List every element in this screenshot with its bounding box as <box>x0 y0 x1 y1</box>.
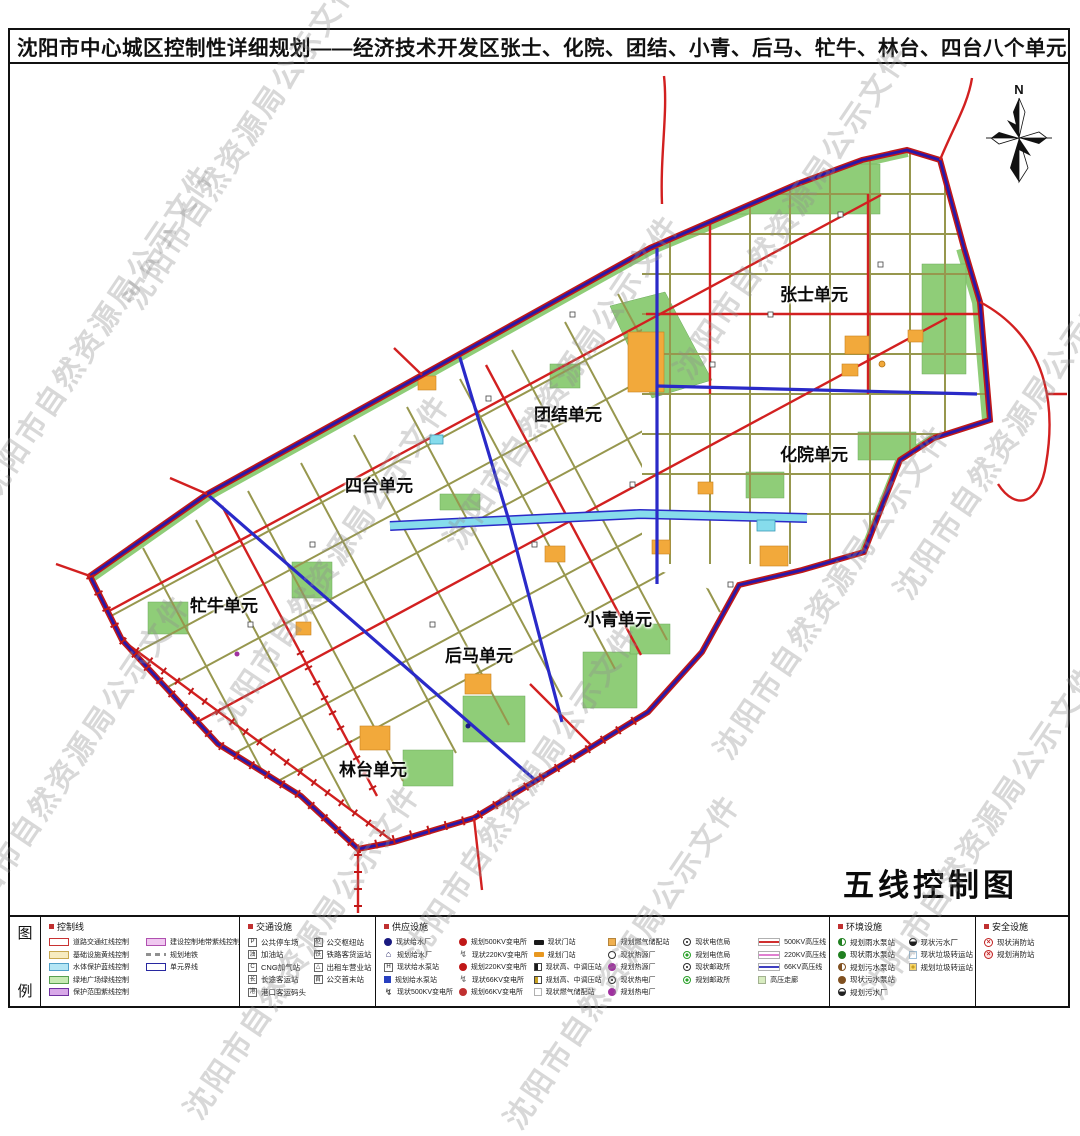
legend-item-label: 公交首末站 <box>327 974 365 985</box>
north-arrow-icon: N <box>986 82 1052 182</box>
legend-item: 规划垃圾转运站 <box>909 962 974 972</box>
legend-item: 长长途客运站 <box>248 975 308 985</box>
legend-item-label: 建设控制地带紫线控制 <box>170 937 239 947</box>
legend-item-label: 单元界线 <box>170 962 198 972</box>
legend-item-label: 公交枢纽站 <box>327 937 365 948</box>
legend-item-label: 规划消防站 <box>997 949 1035 960</box>
legend-swatch-openrect-icon <box>49 938 69 946</box>
legend-label-char-top: 图 <box>17 922 32 943</box>
plan-sheet: 沈阳市中心城区控制性详细规划——经济技术开发区张士、化院、团结、小青、后马、牤牛… <box>0 0 1080 1033</box>
legend-section-safety-facilities: 安全设施×现状消防站×规划消防站 <box>975 917 1068 1006</box>
legend-swatch-openrect-icon <box>49 963 69 971</box>
legend-section-transport-facilities: 交通设施P公共停车场油加油站CCNG加气站长长途客运站港港口客运码头枢公交枢纽站… <box>239 917 375 1006</box>
legend-item: 现状高、中调压站 <box>534 962 603 972</box>
legend-section-title-text: 供应设施 <box>392 920 428 933</box>
legend: 图 例 控制线道路交通红线控制基础设施黄线控制水体保护蓝线控制绿地广场绿线控制保… <box>10 915 1068 1006</box>
legend-item: 油加油站 <box>248 950 308 960</box>
legend-swatch-pot-icon <box>838 988 846 996</box>
legend-swatch-fire-icon: × <box>984 938 993 947</box>
legend-item: 基础设施黄线控制 <box>49 950 140 960</box>
legend-swatch-line-icon <box>758 938 780 946</box>
legend-item-label: 规划高、中调压站 <box>546 975 602 985</box>
legend-section-title: 环境设施 <box>838 920 973 933</box>
legend-item: 规划热源厂 <box>608 962 677 972</box>
legend-swatch-ring-icon <box>608 951 616 959</box>
legend-item-label: 现状高、中调压站 <box>546 962 602 972</box>
legend-column: 500KV高压线220KV高压线66KV高压线高压走廊 <box>758 937 827 997</box>
legend-item: CCNG加气站 <box>248 962 308 972</box>
legend-columns: ×现状消防站×规划消防站 <box>984 937 1066 960</box>
legend-item-label: 现状500KV变电所 <box>397 987 453 997</box>
legend-section-marker-icon <box>49 924 54 929</box>
legend-swatch-line-icon <box>758 963 780 971</box>
legend-item: 单元界线 <box>146 962 237 972</box>
legend-item-label: 现状雨水泵站 <box>850 949 895 960</box>
legend-swatch-circle-icon <box>384 938 392 946</box>
legend-swatch-ringfill-icon <box>683 951 691 959</box>
legend-item: ×规划消防站 <box>984 950 1066 960</box>
legend-swatch-circle-icon <box>608 988 616 996</box>
legend-swatch-bar-icon <box>534 940 544 945</box>
legend-section-environment-facilities: 环境设施规划雨水泵站现状雨水泵站规划污水泵站现状污水泵站规划污水厂现状污水厂现状… <box>829 917 975 1006</box>
legend-column: 道路交通红线控制基础设施黄线控制水体保护蓝线控制绿地广场绿线控制保护范围紫线控制 <box>49 937 140 997</box>
legend-swatch-openrect-icon <box>49 988 69 996</box>
legend-columns: P公共停车场油加油站CCNG加气站长长途客运站港港口客运码头枢公交枢纽站铁铁路客… <box>248 937 373 997</box>
legend-swatch-circle-icon <box>838 951 846 959</box>
legend-item: 建设控制地带紫线控制 <box>146 937 237 947</box>
legend-item: 规划电信局 <box>683 950 752 960</box>
map-area: N 张士单元团结单元化院单元四台单元牤牛单元小青单元后马单元林台单元 五线控制图 <box>10 64 1068 913</box>
legend-item: ↯现状66KV变电所 <box>459 975 528 985</box>
legend-item: 规划给水泵站 <box>384 975 453 985</box>
legend-swatch-ringfill-icon <box>683 976 691 984</box>
legend-swatch-half-icon <box>838 963 846 971</box>
legend-item-label: 现状垃圾转运站 <box>921 949 974 960</box>
document-title-bar: 沈阳市中心城区控制性详细规划——经济技术开发区张士、化院、团结、小青、后马、牤牛… <box>10 30 1068 64</box>
legend-item-label: 规划220KV变电所 <box>471 962 527 972</box>
legend-item: 现状热电厂 <box>608 975 677 985</box>
map-unit-label: 林台单元 <box>339 756 407 781</box>
legend-swatch-sq-icon: C <box>248 963 257 972</box>
legend-swatch-halfbar-icon <box>534 976 542 984</box>
legend-section-title: 安全设施 <box>984 920 1066 933</box>
legend-item: 66KV高压线 <box>758 962 827 972</box>
legend-item-label: 规划污水厂 <box>850 987 888 998</box>
legend-item-label: 现状66KV变电所 <box>472 975 524 985</box>
legend-item: P公共停车场 <box>248 937 308 947</box>
legend-item-label: 规划雨水泵站 <box>850 937 895 948</box>
legend-item-label: 规划垃圾转运站 <box>921 962 974 973</box>
map-title: 五线控制图 <box>843 860 1018 905</box>
legend-item: △出租车营业站 <box>314 962 374 972</box>
legend-item: 现状垃圾转运站 <box>909 950 974 960</box>
legend-item-label: 规划热源厂 <box>620 962 655 972</box>
legend-item-label: 规划500KV变电所 <box>471 937 527 947</box>
legend-swatch-circle-icon <box>459 988 467 996</box>
legend-item-label: 现状消防站 <box>997 937 1035 948</box>
legend-item: 500KV高压线 <box>758 937 827 947</box>
legend-swatch-openrect-icon <box>49 951 69 959</box>
legend-column: 现状门站规划门站现状高、中调压站规划高、中调压站现状燃气储配站 <box>534 937 603 997</box>
legend-item-label: 规划燃气储配站 <box>620 937 669 947</box>
legend-swatch-dashes-icon <box>146 953 166 956</box>
legend-item: 规划污水厂 <box>838 987 903 997</box>
legend-item-label: 加油站 <box>261 949 284 960</box>
legend-item: 现状燃气储配站 <box>534 987 603 997</box>
legend-swatch-circle-icon <box>459 938 467 946</box>
legend-section-title: 控制线 <box>49 920 237 933</box>
legend-item: 水体保护蓝线控制 <box>49 962 140 972</box>
legend-item-label: 基础设施黄线控制 <box>73 950 129 960</box>
legend-swatch-sqoutline-icon <box>909 951 917 959</box>
planning-map: N <box>10 64 1068 913</box>
legend-section-marker-icon <box>984 924 989 929</box>
legend-item-label: 水体保护蓝线控制 <box>73 962 129 972</box>
legend-swatch-circle-icon <box>608 963 616 971</box>
legend-item-label: 现状电信局 <box>695 937 730 947</box>
legend-item: 铁铁路客货运站 <box>314 950 374 960</box>
legend-section-title-text: 环境设施 <box>846 920 882 933</box>
legend-swatch-clock-icon <box>608 976 616 984</box>
legend-swatch-bar-icon <box>534 952 544 957</box>
legend-item-label: 道路交通红线控制 <box>73 937 129 947</box>
legend-column: 现状污水厂现状垃圾转运站规划垃圾转运站 <box>909 937 974 997</box>
legend-item: 现状污水厂 <box>909 937 974 947</box>
legend-item: 规划雨水泵站 <box>838 937 903 947</box>
legend-swatch-sq-icon: 铁 <box>314 950 323 959</box>
legend-item: 规划500KV变电所 <box>459 937 528 947</box>
legend-item-label: 规划邮政所 <box>695 975 730 985</box>
legend-item-label: 66KV高压线 <box>784 962 822 972</box>
legend-item: ⌂规划给水厂 <box>384 950 453 960</box>
legend-section-title: 交通设施 <box>248 920 373 933</box>
legend-swatch-sq-icon: 港 <box>248 988 257 997</box>
legend-swatch-sunsq-icon <box>909 963 917 971</box>
legend-item: ×现状消防站 <box>984 937 1066 947</box>
legend-label: 图 例 <box>10 917 41 1006</box>
legend-columns: 规划雨水泵站现状雨水泵站规划污水泵站现状污水泵站规划污水厂现状污水厂现状垃圾转运… <box>838 937 973 997</box>
legend-section-title: 供应设施 <box>384 920 827 933</box>
legend-item-label: 现状220KV变电所 <box>472 950 528 960</box>
legend-swatch-pot-icon <box>909 938 917 946</box>
north-label: N <box>1014 82 1023 97</box>
legend-item-label: 现状给水厂 <box>396 937 431 947</box>
legend-item-label: 现状污水泵站 <box>850 974 895 985</box>
legend-swatch-sqoutline-icon <box>534 988 542 996</box>
document-frame: 沈阳市中心城区控制性详细规划——经济技术开发区张士、化院、团结、小青、后马、牤牛… <box>8 28 1070 1008</box>
legend-swatch-sq-icon: H <box>384 963 393 972</box>
legend-item: 枢公交枢纽站 <box>314 937 374 947</box>
legend-column: 规划雨水泵站现状雨水泵站规划污水泵站现状污水泵站规划污水厂 <box>838 937 903 997</box>
legend-section-supply-facilities: 供应设施现状给水厂⌂规划给水厂H现状给水泵站规划给水泵站↯现状500KV变电所规… <box>375 917 829 1006</box>
legend-item: 现状给水厂 <box>384 937 453 947</box>
legend-item: 规划燃气储配站 <box>608 937 677 947</box>
legend-swatch-sqfill-icon <box>758 976 766 984</box>
legend-swatch-line-icon <box>758 951 780 959</box>
map-unit-label: 四台单元 <box>345 472 413 497</box>
legend-column: 规划500KV变电所↯现状220KV变电所规划220KV变电所↯现状66KV变电… <box>459 937 528 997</box>
legend-section-title-text: 交通设施 <box>256 920 292 933</box>
legend-sections: 控制线道路交通红线控制基础设施黄线控制水体保护蓝线控制绿地广场绿线控制保护范围紫… <box>41 917 1068 1006</box>
legend-swatch-sq-icon: 长 <box>248 975 257 984</box>
legend-section-marker-icon <box>248 924 253 929</box>
map-unit-label: 团结单元 <box>534 401 602 426</box>
map-unit-label: 张士单元 <box>780 281 848 306</box>
legend-swatch-openrect-icon <box>146 963 166 971</box>
legend-item-label: 规划地铁 <box>170 950 198 960</box>
legend-item-label: 公共停车场 <box>261 937 299 948</box>
legend-item: 保护范围紫线控制 <box>49 987 140 997</box>
legend-item-label: 绿地广场绿线控制 <box>73 975 129 985</box>
legend-item-label: 现状邮政所 <box>695 962 730 972</box>
legend-item: 港港口客运码头 <box>248 987 308 997</box>
legend-item-label: 现状给水泵站 <box>397 962 439 972</box>
legend-swatch-house-icon: ⌂ <box>384 950 393 959</box>
legend-swatch-sq-icon: 枢 <box>314 938 323 947</box>
legend-section-title-text: 控制线 <box>57 920 84 933</box>
legend-item: 规划门站 <box>534 950 603 960</box>
legend-swatch-openrect-icon <box>49 976 69 984</box>
legend-item: 现状邮政所 <box>683 962 752 972</box>
legend-item-label: 220KV高压线 <box>784 950 826 960</box>
legend-item-label: 保护范围紫线控制 <box>73 987 129 997</box>
legend-swatch-sq-icon: 首 <box>314 975 323 984</box>
map-unit-label: 牤牛单元 <box>190 592 258 617</box>
legend-item-label: CNG加气站 <box>261 962 300 973</box>
legend-column: 建设控制地带紫线控制规划地铁单元界线 <box>146 937 237 997</box>
legend-swatch-half-icon <box>838 938 846 946</box>
legend-swatch-bolt-icon: ↯ <box>384 988 393 997</box>
legend-item-label: 现状污水厂 <box>921 937 959 948</box>
legend-item: 规划66KV变电所 <box>459 987 528 997</box>
legend-item-label: 现状热电厂 <box>620 975 655 985</box>
legend-swatch-sq-icon: P <box>248 938 257 947</box>
legend-item-label: 高压走廊 <box>770 975 798 985</box>
legend-column: P公共停车场油加油站CCNG加气站长长途客运站港港口客运码头 <box>248 937 308 997</box>
legend-swatch-sq-icon: 油 <box>248 950 257 959</box>
legend-item: 规划邮政所 <box>683 975 752 985</box>
legend-swatch-openrect-icon <box>146 938 166 946</box>
legend-item-label: 规划电信局 <box>695 950 730 960</box>
legend-item: 规划地铁 <box>146 950 237 960</box>
legend-item-label: 规划热电厂 <box>620 987 655 997</box>
legend-column: 现状给水厂⌂规划给水厂H现状给水泵站规划给水泵站↯现状500KV变电所 <box>384 937 453 997</box>
legend-item-label: 规划66KV变电所 <box>471 987 523 997</box>
legend-swatch-sq-icon: △ <box>314 963 323 972</box>
legend-item-label: 铁路客货运站 <box>327 949 372 960</box>
legend-item-label: 出租车营业站 <box>327 962 372 973</box>
legend-item-label: 现状门站 <box>548 937 576 947</box>
legend-swatch-clock-icon <box>683 963 691 971</box>
legend-columns: 道路交通红线控制基础设施黄线控制水体保护蓝线控制绿地广场绿线控制保护范围紫线控制… <box>49 937 237 997</box>
legend-item: 现状门站 <box>534 937 603 947</box>
legend-item-label: 港口客运码头 <box>261 987 306 998</box>
legend-item: 规划高、中调压站 <box>534 975 603 985</box>
legend-label-char-bottom: 例 <box>17 980 32 1001</box>
legend-item: 道路交通红线控制 <box>49 937 140 947</box>
map-unit-label: 小青单元 <box>584 606 652 631</box>
legend-item-label: 现状热源厂 <box>620 950 655 960</box>
legend-swatch-fire2-icon: × <box>984 950 993 959</box>
legend-column: 规划燃气储配站现状热源厂规划热源厂现状热电厂规划热电厂 <box>608 937 677 997</box>
legend-section-marker-icon <box>384 924 389 929</box>
legend-item: 首公交首末站 <box>314 975 374 985</box>
legend-item-label: 500KV高压线 <box>784 937 826 947</box>
legend-item-label: 现状燃气储配站 <box>546 987 595 997</box>
legend-swatch-circle-icon <box>459 963 467 971</box>
legend-item: ↯现状220KV变电所 <box>459 950 528 960</box>
legend-item-label: 规划给水厂 <box>397 950 432 960</box>
legend-column: 枢公交枢纽站铁铁路客货运站△出租车营业站首公交首末站 <box>314 937 374 997</box>
map-unit-label: 后马单元 <box>445 642 513 667</box>
map-unit-label: 化院单元 <box>780 441 848 466</box>
legend-item: 绿地广场绿线控制 <box>49 975 140 985</box>
legend-item: 高压走廊 <box>758 975 827 985</box>
legend-section-title-text: 安全设施 <box>992 920 1028 933</box>
legend-swatch-clock-icon <box>683 938 691 946</box>
legend-column: ×现状消防站×规划消防站 <box>984 937 1066 960</box>
legend-item: 现状电信局 <box>683 937 752 947</box>
legend-columns: 现状给水厂⌂规划给水厂H现状给水泵站规划给水泵站↯现状500KV变电所规划500… <box>384 937 827 997</box>
legend-item: 220KV高压线 <box>758 950 827 960</box>
planning-area <box>90 150 990 849</box>
legend-item: H现状给水泵站 <box>384 962 453 972</box>
legend-swatch-bolt-icon: ↯ <box>459 975 468 984</box>
legend-swatch-circle-icon <box>838 976 846 984</box>
legend-item: 规划污水泵站 <box>838 962 903 972</box>
document-title: 沈阳市中心城区控制性详细规划——经济技术开发区张士、化院、团结、小青、后马、牤牛… <box>17 31 1067 61</box>
legend-item: 规划热电厂 <box>608 987 677 997</box>
legend-swatch-halfbar-icon <box>534 963 542 971</box>
legend-column: 现状电信局规划电信局现状邮政所规划邮政所 <box>683 937 752 997</box>
legend-section-marker-icon <box>838 924 843 929</box>
legend-swatch-sqfill-icon <box>608 938 616 946</box>
legend-item: 现状污水泵站 <box>838 975 903 985</box>
legend-item-label: 规划给水泵站 <box>395 975 437 985</box>
legend-item-label: 规划门站 <box>548 950 576 960</box>
legend-section-control-lines: 控制线道路交通红线控制基础设施黄线控制水体保护蓝线控制绿地广场绿线控制保护范围紫… <box>41 917 239 1006</box>
legend-item: ↯现状500KV变电所 <box>384 987 453 997</box>
legend-item-label: 长途客运站 <box>261 974 299 985</box>
legend-swatch-square-icon <box>384 976 391 983</box>
legend-item: 现状雨水泵站 <box>838 950 903 960</box>
legend-item-label: 规划污水泵站 <box>850 962 895 973</box>
legend-item: 规划220KV变电所 <box>459 962 528 972</box>
legend-item: 现状热源厂 <box>608 950 677 960</box>
legend-swatch-bolt-icon: ↯ <box>459 950 468 959</box>
